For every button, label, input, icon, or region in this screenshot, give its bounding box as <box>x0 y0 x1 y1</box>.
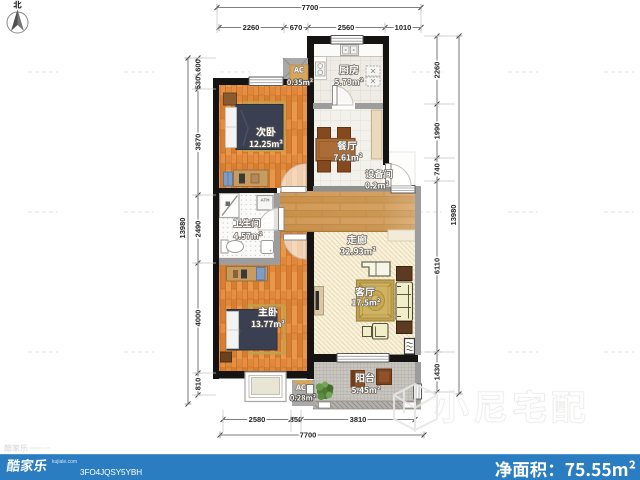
svg-text:3870: 3870 <box>194 134 203 151</box>
svg-text:530: 530 <box>194 77 203 90</box>
svg-text:2580: 2580 <box>249 415 266 424</box>
svg-text:1430: 1430 <box>433 364 442 381</box>
svg-text:6110: 6110 <box>433 258 442 274</box>
svg-text:kujiale.com: kujiale.com <box>30 445 51 450</box>
svg-text:3810: 3810 <box>350 415 367 424</box>
svg-text:7700: 7700 <box>300 431 317 440</box>
svg-text:810: 810 <box>194 378 203 391</box>
svg-text:600: 600 <box>194 59 203 72</box>
svg-text:7700: 7700 <box>302 3 319 12</box>
svg-text:2560: 2560 <box>338 23 355 32</box>
svg-text:kujiale.com: kujiale.com <box>52 459 77 465</box>
svg-text:740: 740 <box>433 163 442 176</box>
svg-text:13980: 13980 <box>449 205 458 226</box>
svg-text:13980: 13980 <box>178 218 187 239</box>
svg-text:ATH: ATH <box>261 198 270 203</box>
svg-text:3FO4JQSY5YBH: 3FO4JQSY5YBH <box>80 468 142 477</box>
svg-text:4000: 4000 <box>194 310 203 327</box>
svg-text:2260: 2260 <box>243 23 260 32</box>
svg-text:2260: 2260 <box>433 62 442 79</box>
svg-text:1990: 1990 <box>433 123 442 140</box>
svg-text:670: 670 <box>290 23 303 32</box>
svg-text:2490: 2490 <box>194 221 203 238</box>
svg-text:1010: 1010 <box>395 23 412 32</box>
